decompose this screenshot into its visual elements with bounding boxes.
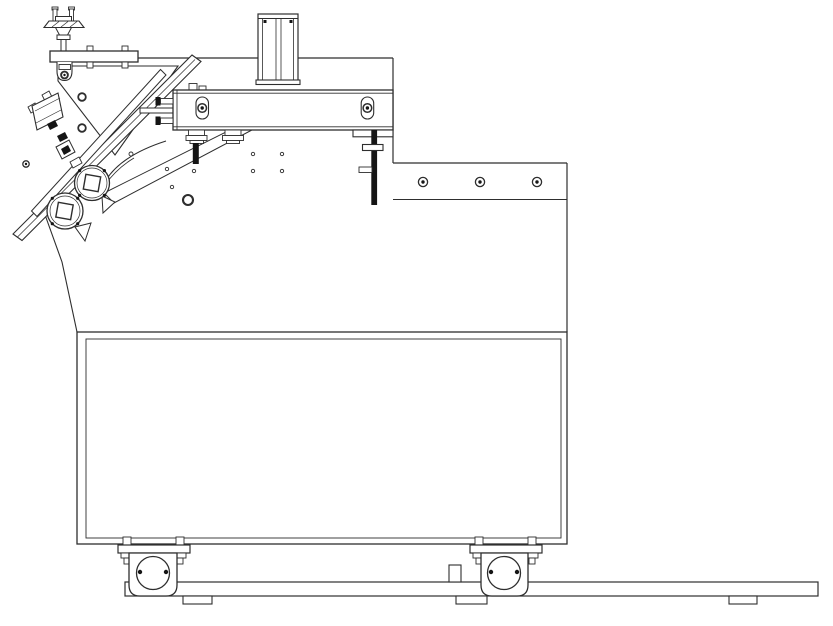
technical-drawing-page — [0, 0, 833, 626]
technical-drawing — [0, 0, 833, 626]
roller-shaft-flanges — [47, 166, 115, 242]
rail-clamp-block — [28, 91, 82, 168]
side-strip-bolt-holes — [418, 177, 541, 186]
base-rail — [125, 565, 818, 604]
cylinder-column — [256, 14, 300, 85]
cabinet-body — [77, 332, 567, 544]
clamp-bar-assembly — [140, 84, 393, 206]
